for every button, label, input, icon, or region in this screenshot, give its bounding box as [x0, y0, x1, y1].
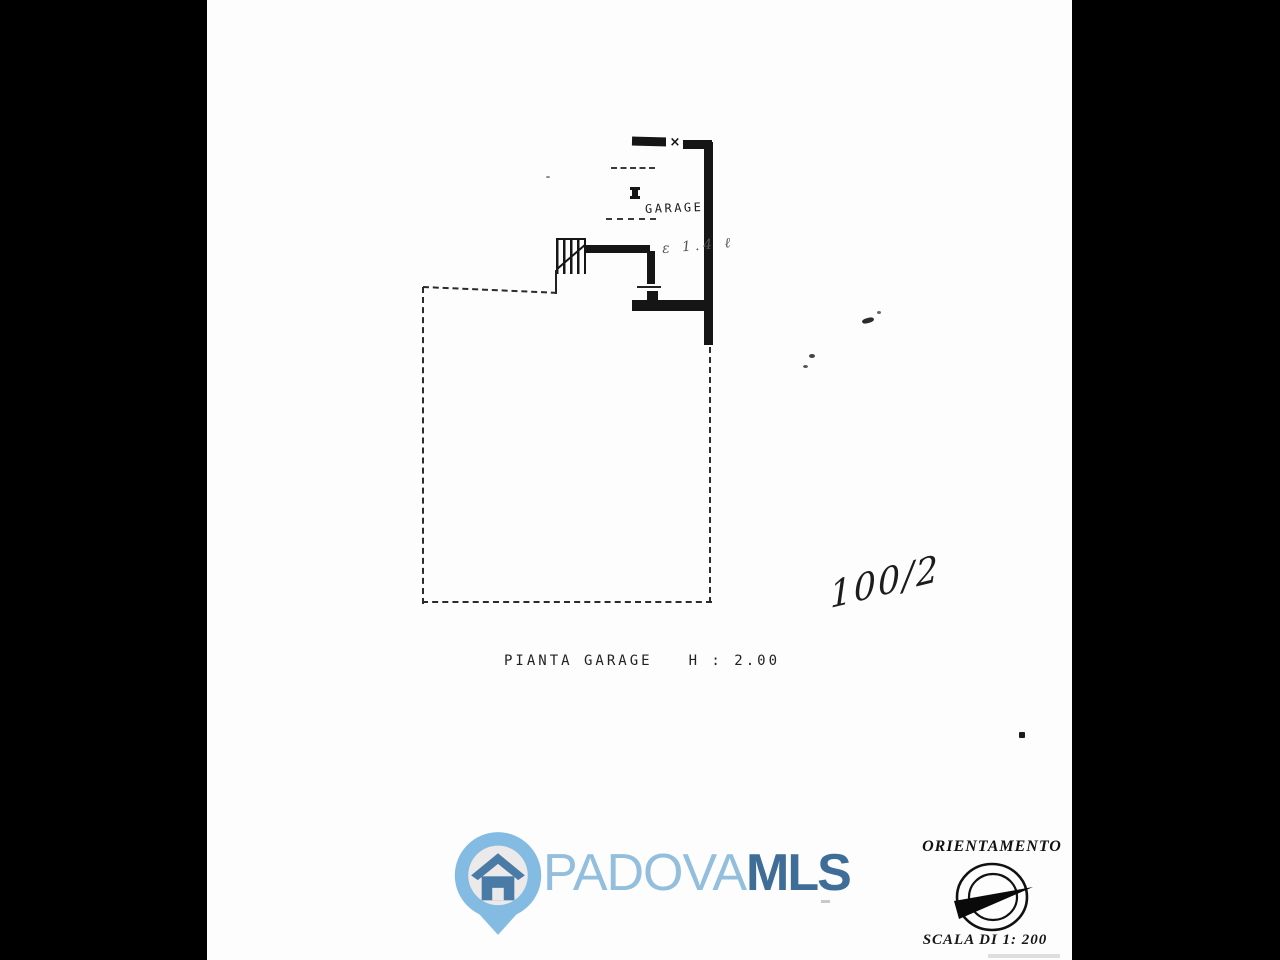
- garage-door-marker-icon: ×: [666, 136, 684, 149]
- handwritten-note: ε 1.4 ℓ: [661, 235, 735, 258]
- room-label-garage: GARAGE: [645, 200, 704, 216]
- plan-caption: PIANTA GARAGE H : 2.00: [504, 653, 780, 669]
- courtyard-boundary-left: [422, 287, 424, 604]
- door-threshold-line: [637, 286, 661, 288]
- courtyard-boundary-top: [423, 286, 557, 294]
- wall-mid-vertical: [647, 251, 655, 284]
- orientation-title: ORIENTAMENTO: [922, 838, 1062, 856]
- trademark-mark: [821, 900, 830, 903]
- wordmark-mls: MLS: [746, 844, 850, 902]
- garage-interior-dashed-line: [606, 218, 656, 220]
- plan-caption-title: PIANTA GARAGE: [504, 653, 653, 669]
- garage-interior-dashed-line: [611, 167, 655, 169]
- scan-speck: [809, 354, 815, 358]
- plan-caption-height: H : 2.00: [689, 653, 780, 669]
- scan-speck: [862, 317, 875, 325]
- compass-icon: [945, 858, 1045, 940]
- wordmark-padova: PADOVA: [543, 844, 746, 902]
- handwritten-fraction: 100/2: [829, 548, 941, 617]
- scale-label: SCALA DI 1: 200: [915, 932, 1055, 949]
- scan-speck: [803, 365, 808, 368]
- boundary-connector-line: [555, 270, 557, 294]
- scanned-floorplan-page: × GARAGE ε 1.4 ℓ: [0, 0, 1280, 960]
- scan-speck: [546, 176, 550, 178]
- stairs-icon: [556, 238, 586, 274]
- column-symbol-icon: [630, 196, 640, 199]
- wall-bottom: [632, 300, 713, 311]
- courtyard-boundary-right: [709, 347, 711, 603]
- scan-speck: [1019, 732, 1025, 738]
- courtyard-boundary-bottom: [422, 601, 712, 603]
- floorplan-drawing: × GARAGE ε 1.4 ℓ: [0, 0, 1280, 960]
- wall-top-left-segment: [632, 137, 668, 147]
- logo-wordmark: PADOVAMLS: [543, 847, 850, 899]
- wall-stair-landing: [584, 245, 650, 253]
- scan-speck: [877, 311, 881, 314]
- map-pin-icon: [450, 832, 546, 936]
- scan-smudge: [988, 954, 1060, 958]
